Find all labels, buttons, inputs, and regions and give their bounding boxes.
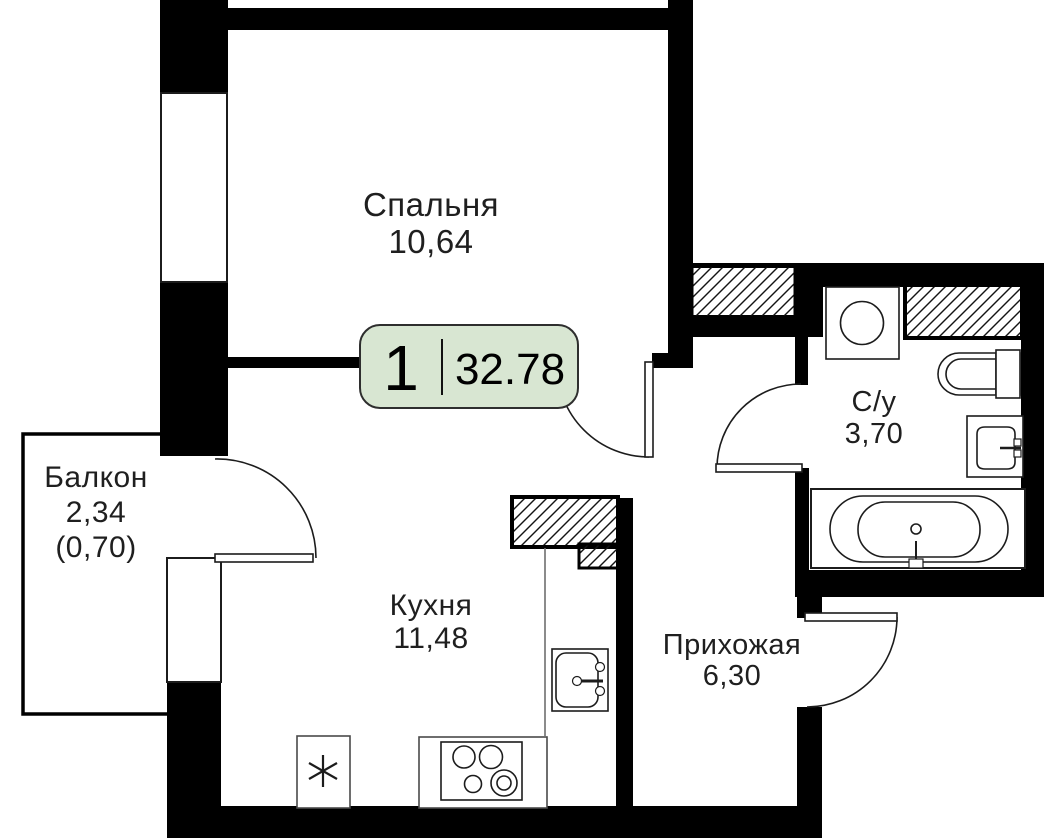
wall-bathroom-west-lower [795,468,809,572]
stove-icon [419,737,547,808]
balcony-area: 2,34 [16,495,176,530]
bathroom-label: С/у 3,70 [824,386,924,450]
wall-left-mid [160,280,228,456]
wall-bottom [168,806,822,838]
wall-bathroom-bottom [795,570,1044,597]
floor-plan: Спальня 10,64 Балкон 2,34 (0,70) Кухня 1… [0,0,1044,838]
entrance-door-leaf [805,613,897,621]
shaft-bathroom-icon [905,285,1022,338]
balcony-door-leaf [215,554,313,562]
kitchen-window [167,558,221,682]
kitchen-name: Кухня [351,589,511,622]
bathroom-name: С/у [824,386,924,418]
balcony-area-coef: (0,70) [16,530,176,565]
wall-hallway-east-lower [797,707,822,838]
total-area: 32.78 [443,326,577,407]
toilet-icon [938,350,1020,398]
shaft-kitchen-small-icon [579,544,618,568]
wall-bathroom-west-upper [795,337,808,385]
shaft-kitchen-big-icon [512,497,618,547]
kitchen-label: Кухня 11,48 [351,589,511,655]
bathtub-icon [811,489,1025,568]
hallway-name: Прихожая [647,630,817,661]
shaft-corridor-icon [692,266,795,317]
kitchen-fixtures [297,649,608,808]
bathroom-door-leaf [716,464,802,472]
entrance-door-arc [807,617,897,707]
balcony-door-arc [215,459,316,558]
wall-shaft-right [795,263,823,337]
bedroom-door-leaf [645,362,653,457]
wall-left-top [160,0,228,95]
kitchen-area: 11,48 [351,622,511,655]
rooms-count: 1 [361,326,441,407]
kitchen-sink-icon [552,649,608,711]
wall-bedroom-east-step [652,353,693,368]
bathroom-area: 3,70 [824,418,924,450]
washing-machine-icon [826,287,899,359]
wall-top [228,8,668,30]
wall-bedroom-east [668,0,693,355]
bedroom-area: 10,64 [331,223,531,260]
hallway-area: 6,30 [647,661,817,692]
balcony-name: Балкон [16,460,176,495]
balcony-label: Балкон 2,34 (0,70) [16,460,176,565]
washbasin-icon [967,416,1023,477]
apartment-summary-badge: 1 32.78 [359,324,579,409]
bedroom-window [161,93,227,282]
bedroom-label: Спальня 10,64 [331,186,531,260]
bathroom-door-arc [717,384,801,468]
hallway-label: Прихожая 6,30 [647,630,817,692]
fridge-icon [297,736,350,808]
bedroom-name: Спальня [331,186,531,223]
